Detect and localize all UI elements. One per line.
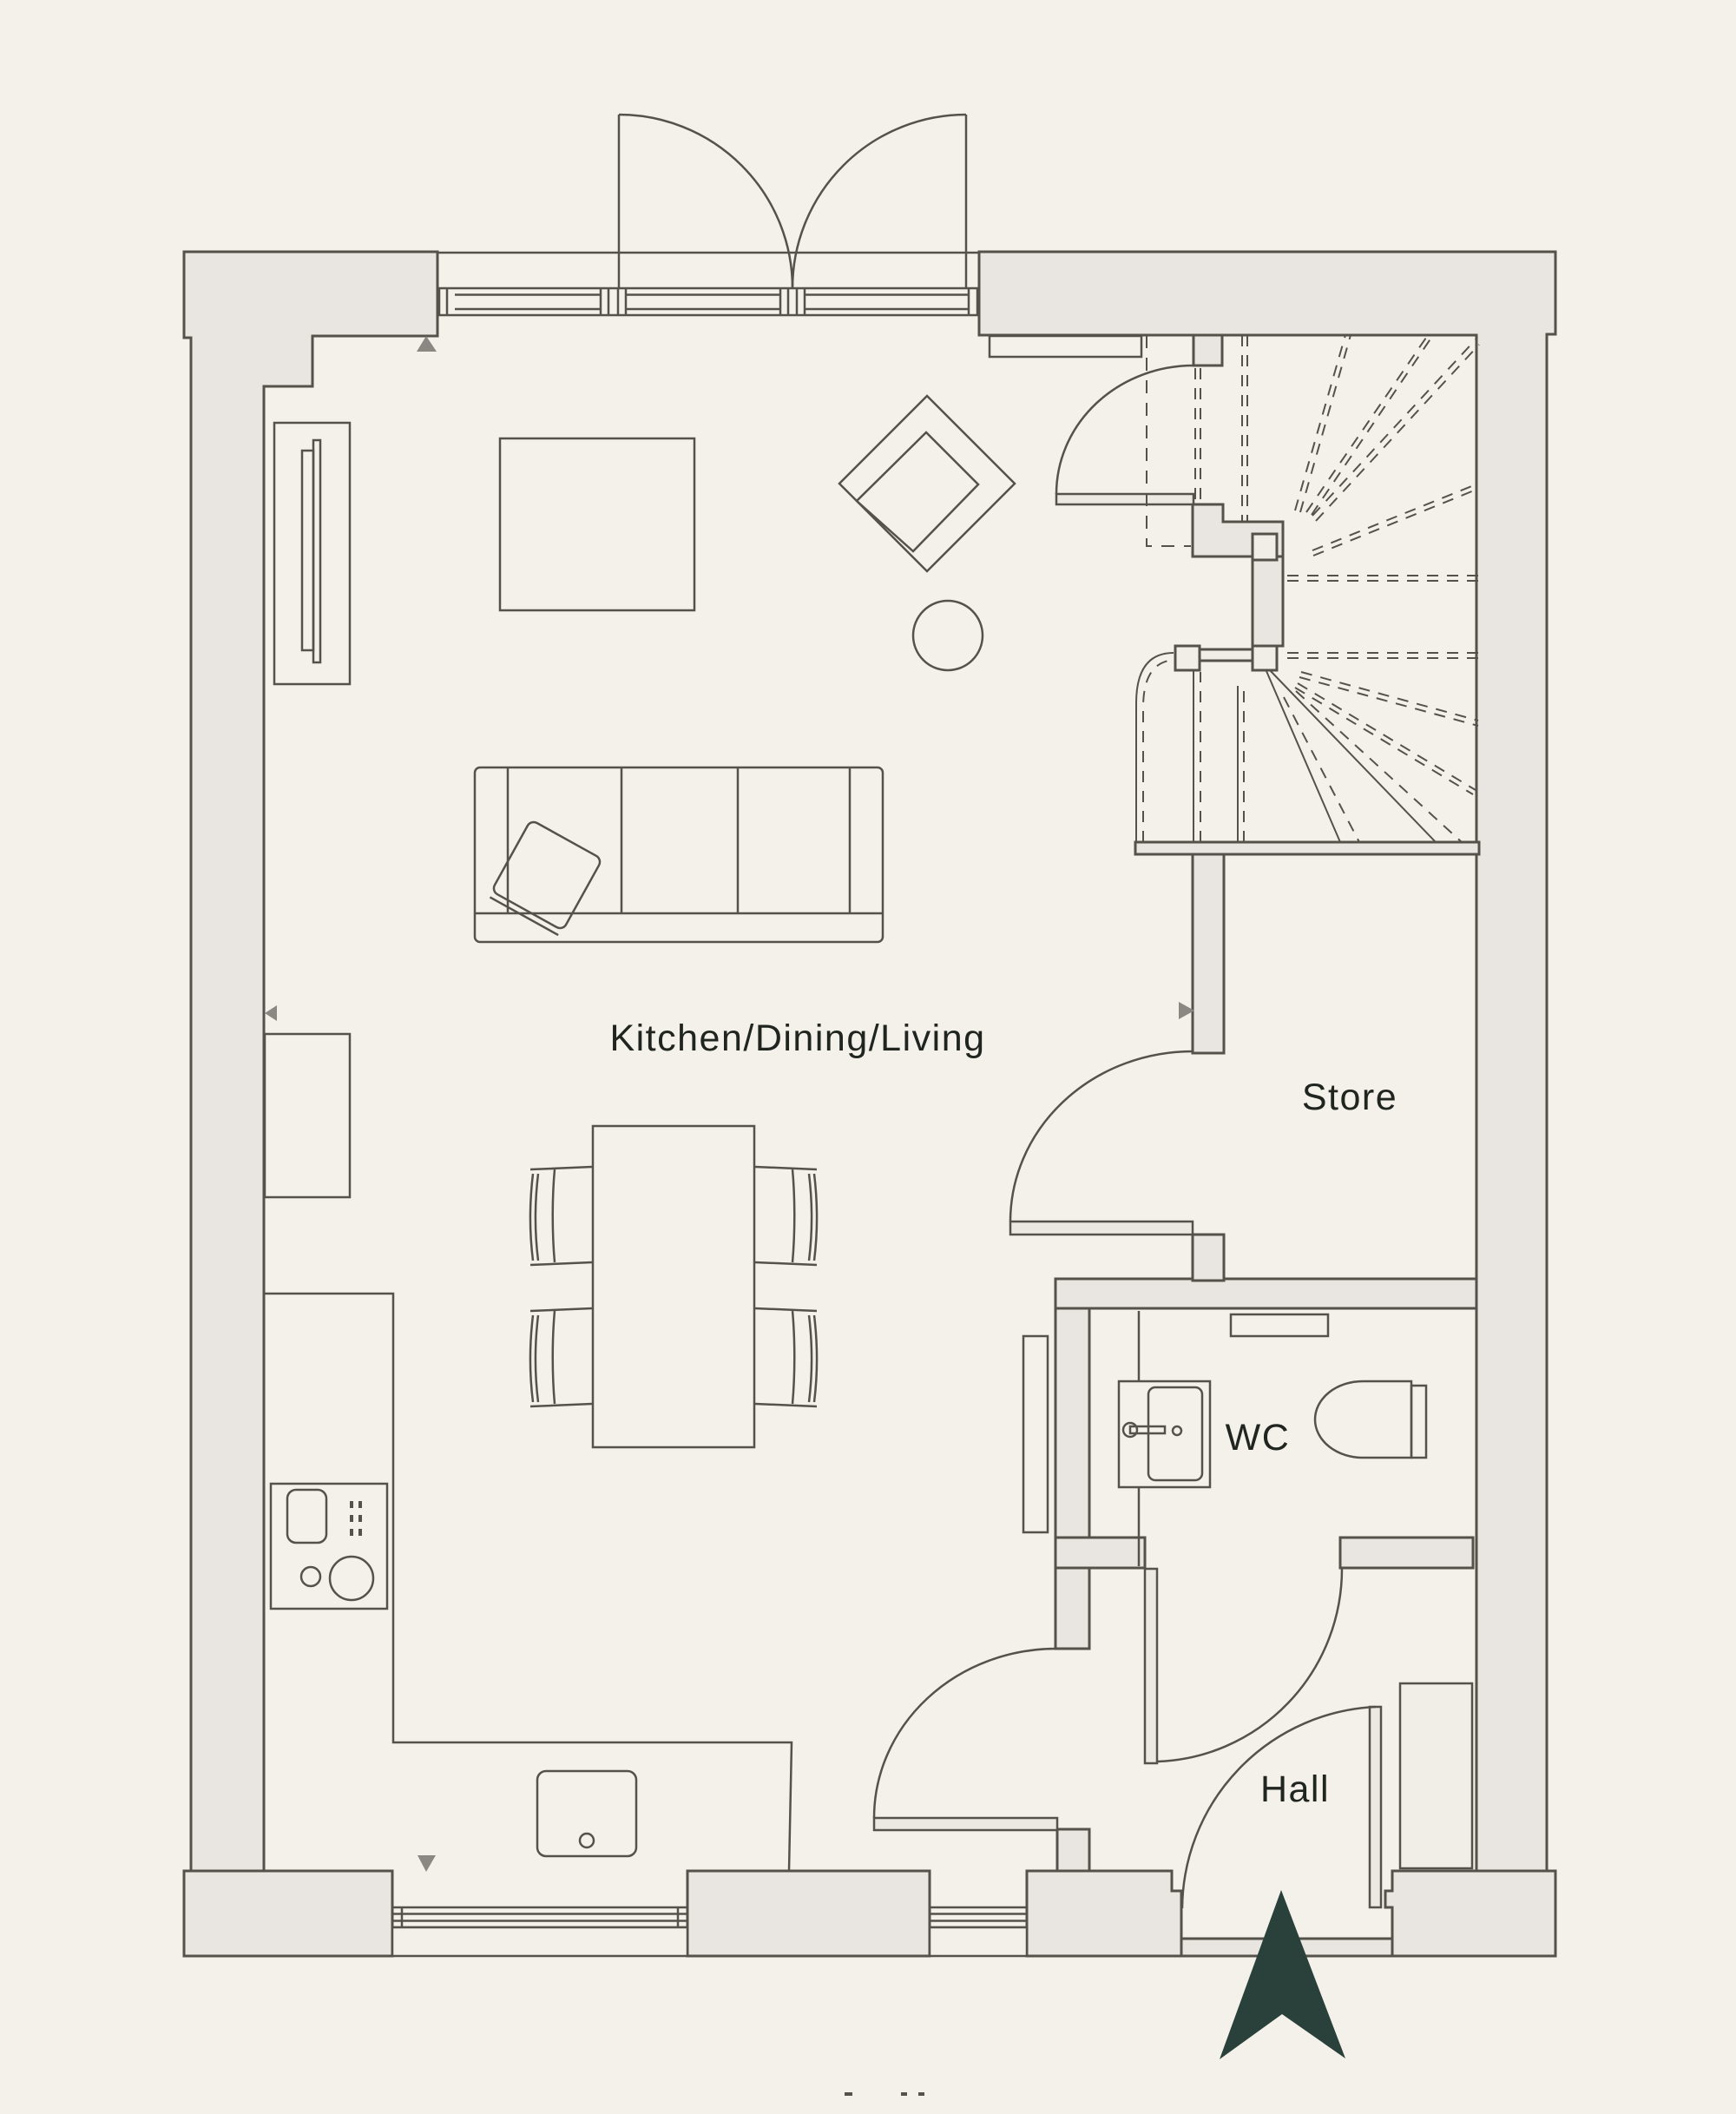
svg-text:WC: WC [1226,1417,1291,1459]
svg-text:Kitchen/Dining/Living: Kitchen/Dining/Living [609,1017,985,1059]
svg-text:Store: Store [1302,1077,1397,1118]
svg-text:Hall: Hall [1260,1768,1330,1810]
